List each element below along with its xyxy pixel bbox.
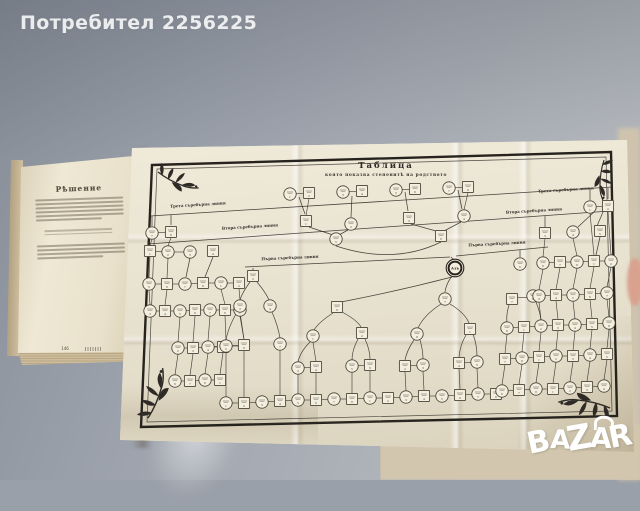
printer-mark: [85, 347, 101, 351]
text-line: [37, 255, 103, 259]
sheet-shadow: [118, 386, 318, 446]
page-number: 146: [61, 346, 69, 351]
decision-heading: Рѣшение: [29, 182, 129, 194]
left-page-text: Рѣшение: [29, 182, 132, 261]
fold-crease-horizontal: [118, 232, 638, 244]
foldout-sheet: [118, 136, 638, 456]
finger: [627, 258, 640, 306]
photo-scene: { "watermark": { "user_label": "Потребит…: [0, 0, 640, 480]
text-line: [37, 250, 125, 255]
fold-crease-vertical: [450, 136, 464, 456]
logo-letter: R: [607, 423, 634, 451]
user-watermark: Потребител 2256225: [20, 12, 257, 34]
logo-letter: B: [525, 429, 552, 457]
bazar-logo: B A Z A R: [526, 421, 633, 455]
text-line: [36, 212, 124, 217]
